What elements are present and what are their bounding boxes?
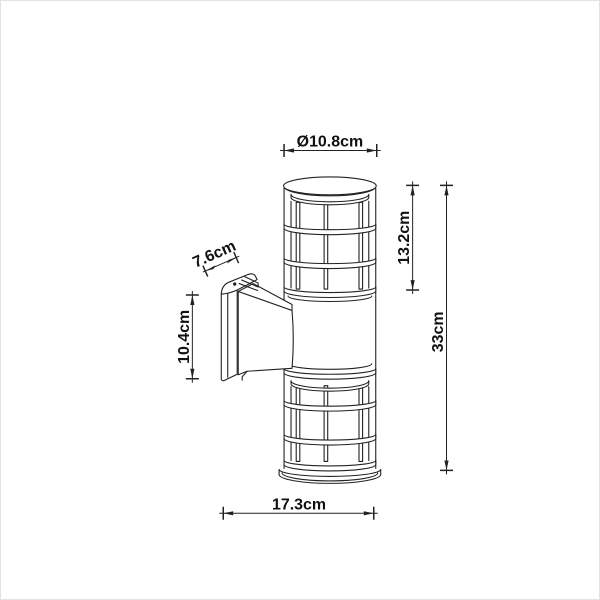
top-cap [284, 177, 377, 196]
bottom-cage-bars [296, 386, 362, 462]
dim-label-total-depth: 17.3cm [272, 496, 326, 513]
bottom-collar-ring [291, 381, 369, 391]
dim-label-plate-height: 10.4cm [176, 310, 193, 364]
dimension-upper-height: 13.2cm [396, 181, 419, 294]
top-cage-bars [296, 202, 362, 289]
top-cap-disc [284, 177, 377, 195]
top-cage-inner-edges [291, 201, 369, 288]
dimension-plate-height: 10.4cm [176, 291, 199, 383]
lamp-cylinder [279, 177, 381, 483]
dimension-total-height: 33cm [430, 181, 453, 474]
wall-mount [221, 274, 293, 381]
dimension-arm-depth: 7.6cm [190, 238, 239, 277]
dim-label-diameter: Ø10.8cm [297, 134, 363, 151]
middle-body [284, 287, 376, 379]
dim-label-upper-height: 13.2cm [396, 211, 413, 265]
wall-plate-body [221, 288, 237, 381]
dimension-total-depth: 17.3cm [219, 496, 377, 519]
bottom-base [279, 469, 381, 483]
dim-label-total-height: 33cm [430, 312, 447, 353]
dimension-diagram: Ø10.8cm 13.2cm 33cm 7.6cm 10.4cm [0, 0, 600, 600]
lamp-line-drawing: Ø10.8cm 13.2cm 33cm 7.6cm 10.4cm [1, 1, 599, 599]
screw-hole-icon [233, 282, 236, 285]
dimension-diameter: Ø10.8cm [280, 134, 381, 157]
bottom-cage-inner-edges [291, 387, 369, 461]
middle-bottom-lip [288, 364, 372, 369]
middle-bottom-rim [284, 369, 376, 379]
